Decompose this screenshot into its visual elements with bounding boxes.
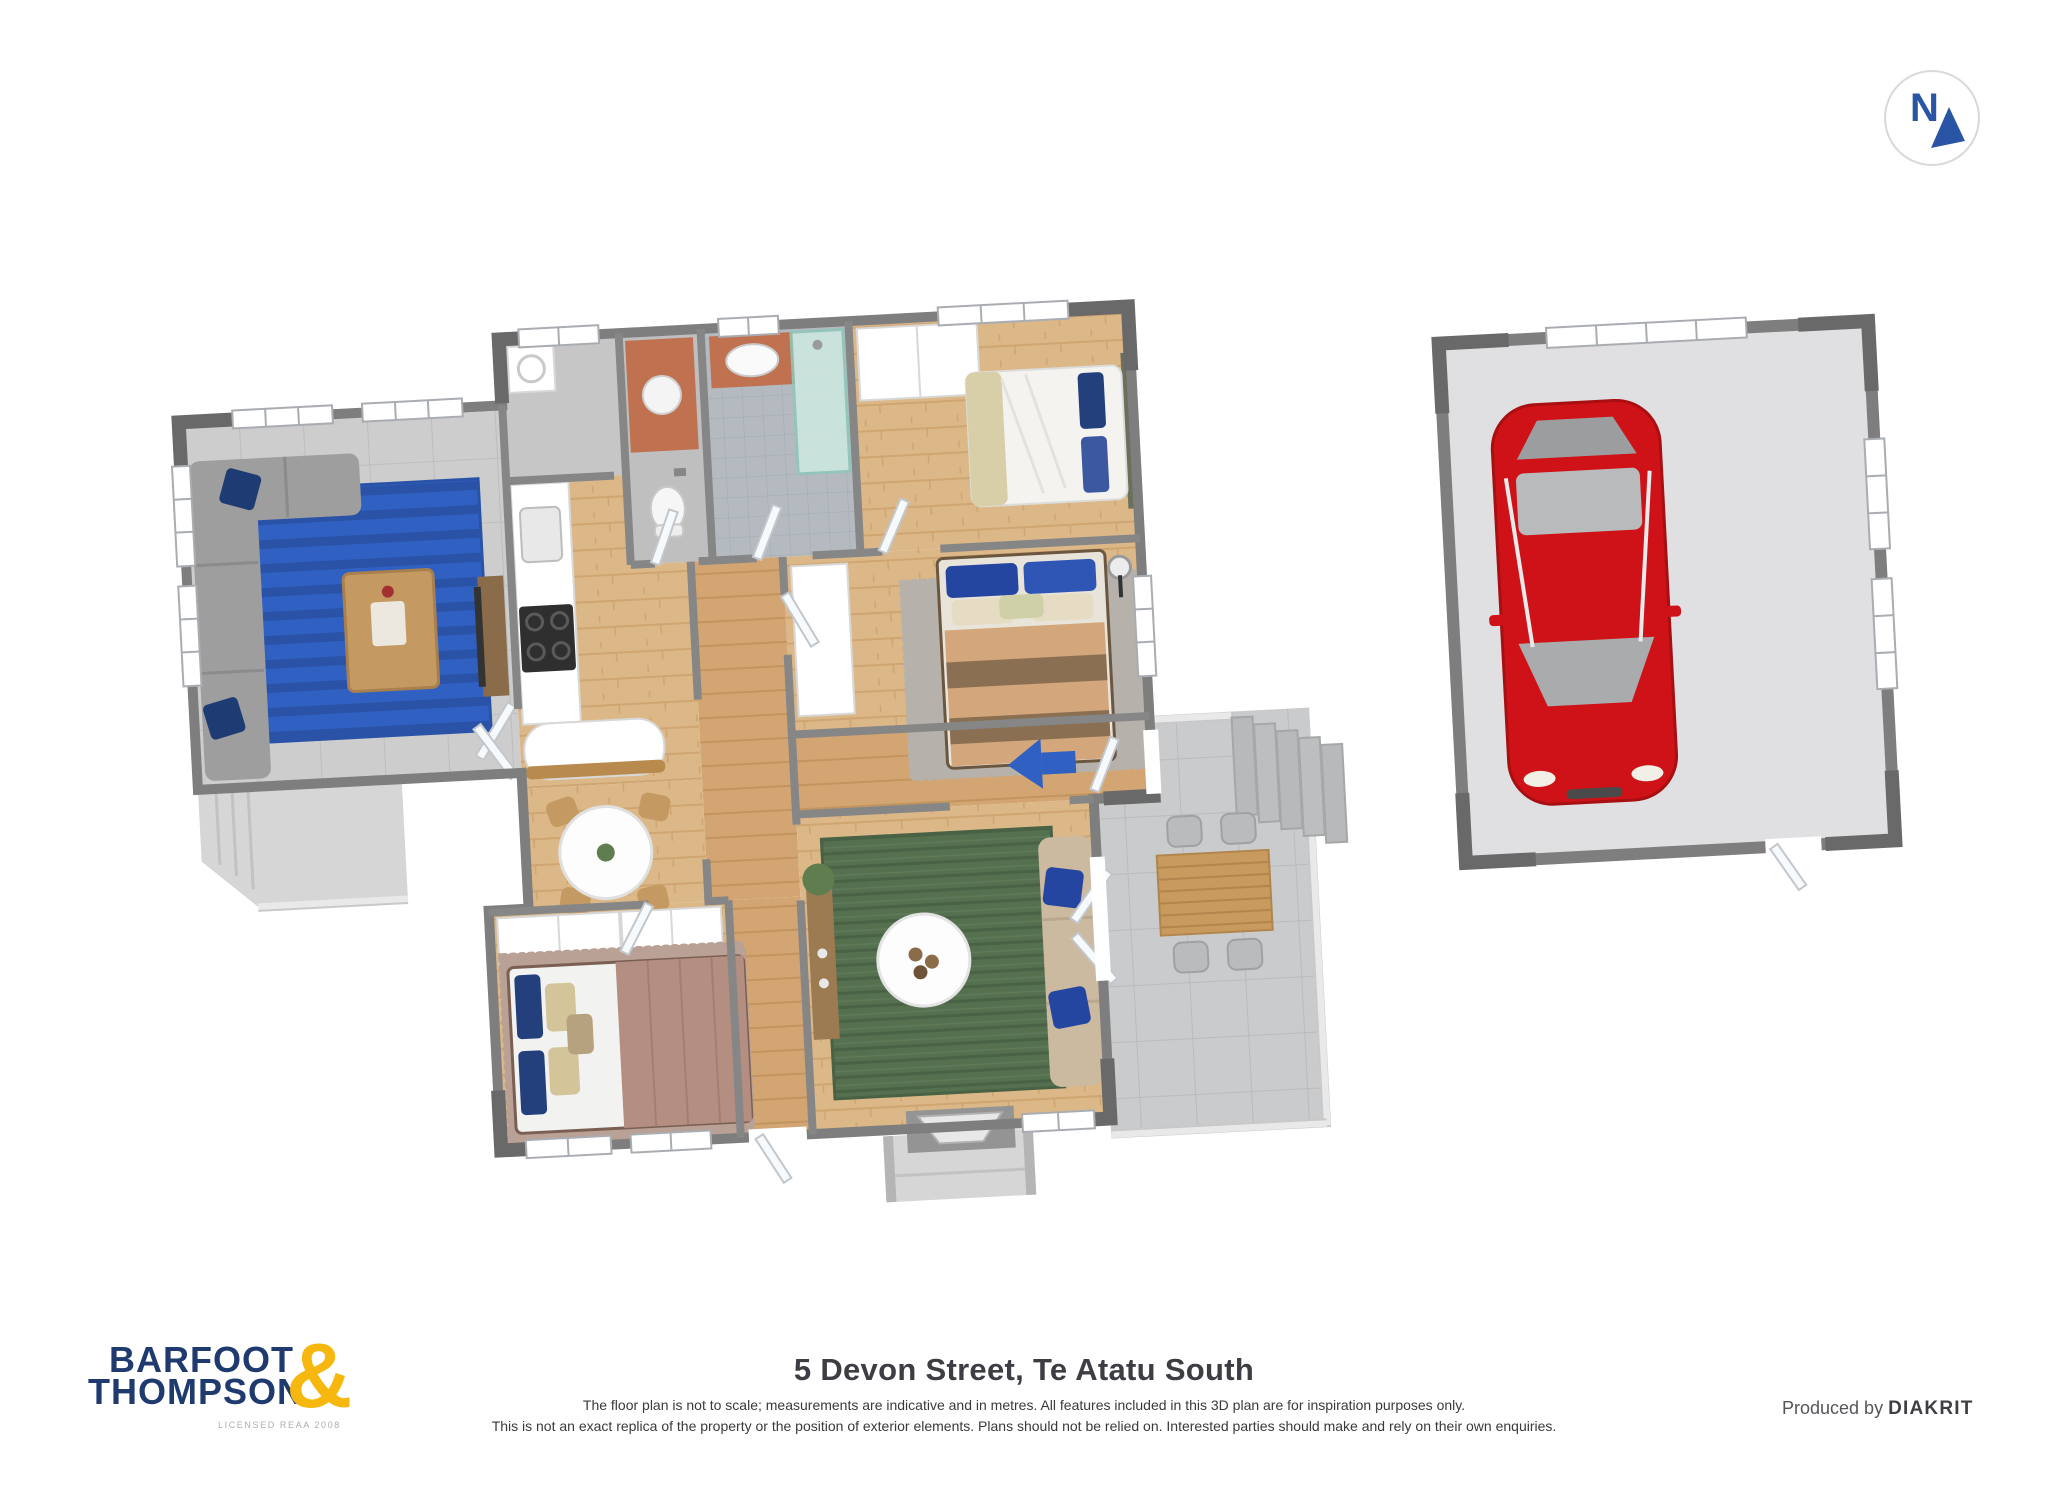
hallway-floor: [691, 557, 801, 901]
washing-machine: [507, 345, 555, 393]
throw-pillow: [1042, 866, 1084, 908]
window: [526, 1136, 612, 1158]
garage-floor-plan: [1438, 311, 1907, 908]
throw-pillow: [1047, 985, 1092, 1030]
property-address-title: 5 Devon Street, Te Atatu South: [0, 1352, 2048, 1388]
laundry-fixtures: [507, 345, 555, 393]
footer-text: 5 Devon Street, Te Atatu South The floor…: [0, 1352, 2048, 1437]
floor-plan-page: N: [0, 0, 2048, 1494]
window: [718, 316, 779, 337]
window: [178, 586, 201, 687]
duvet: [945, 622, 1112, 766]
disclaimer-line2: This is not an exact replica of the prop…: [0, 1416, 2048, 1437]
pillow: [945, 563, 1019, 599]
stove: [519, 604, 576, 673]
window: [631, 1130, 712, 1152]
pillow: [1081, 436, 1110, 493]
pillow: [999, 593, 1044, 619]
closet: [791, 564, 855, 717]
kitchen-sink: [520, 507, 563, 563]
window: [518, 325, 599, 347]
window: [1022, 1110, 1095, 1132]
sunroof: [1516, 467, 1643, 535]
pillow: [514, 974, 543, 1039]
pillow: [1077, 372, 1106, 429]
house-floor-plan: [166, 288, 1365, 1238]
produced-by: Produced by DIAKRIT: [1782, 1398, 1974, 1420]
left-terrace: [198, 779, 408, 914]
side-mirror: [1665, 605, 1682, 617]
shower: [791, 329, 850, 474]
side-mirror: [1489, 615, 1506, 627]
window: [362, 398, 463, 421]
entry-arrow-icon: [1041, 751, 1076, 775]
produced-by-label: Produced by: [1782, 1398, 1883, 1418]
car: [1478, 398, 1691, 808]
producer-brand: DIAKRIT: [1888, 1398, 1973, 1419]
pillow: [566, 1013, 594, 1054]
window: [1133, 576, 1156, 677]
disclaimer: The floor plan is not to scale; measurem…: [0, 1395, 2048, 1437]
window: [172, 466, 195, 567]
disclaimer-line1: The floor plan is not to scale; measurem…: [0, 1395, 2048, 1416]
pillow: [518, 1050, 547, 1115]
window: [232, 405, 333, 428]
pillow: [1023, 559, 1097, 595]
wc-basin: [642, 375, 682, 415]
floor-plan-graphic: [0, 0, 2048, 1494]
